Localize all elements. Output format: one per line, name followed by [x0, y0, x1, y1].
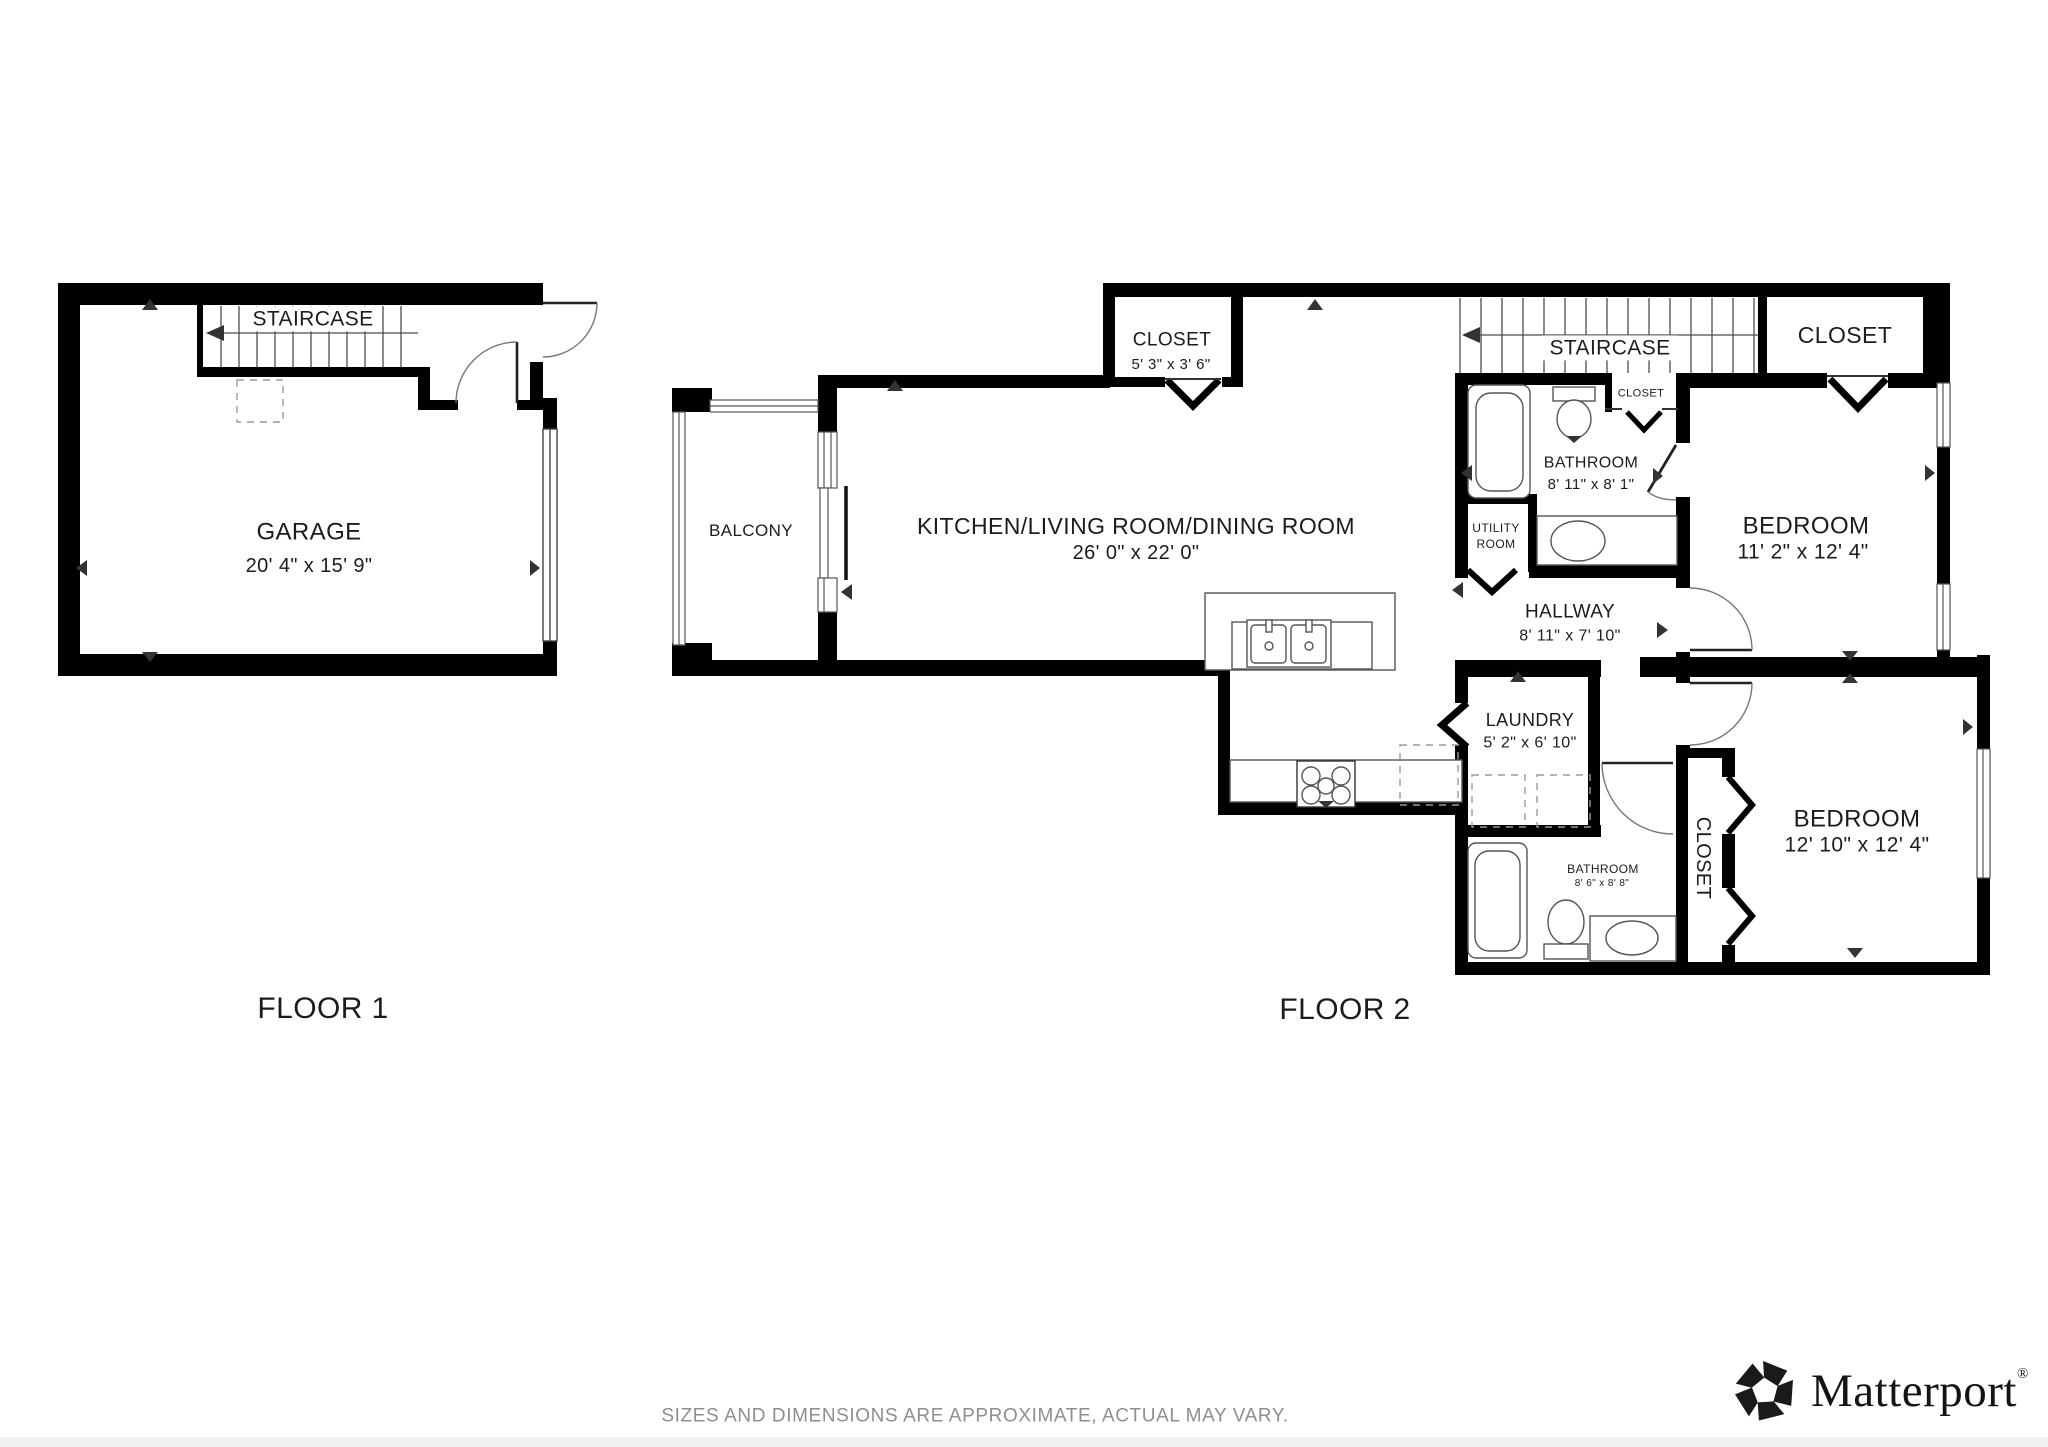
faucet: [1306, 620, 1312, 632]
bathroom1-door: [1648, 445, 1676, 500]
garage-door: [543, 429, 557, 641]
toilet-bowl: [1557, 400, 1591, 438]
room-label-utility: UTILITY ROOM: [1457, 520, 1535, 552]
floor2-title: FLOOR 2: [1279, 992, 1410, 1028]
room-dims-laundry: 5' 2" x 6' 10": [1483, 733, 1576, 752]
water-heater-dashed: [237, 380, 283, 422]
matterport-logo: Matterport®: [1734, 1360, 2029, 1422]
room-dims-bathroom-1: 8' 11" x 8' 1": [1548, 476, 1635, 494]
footer-strip: [0, 1437, 2048, 1447]
toilet-tank: [1544, 944, 1588, 959]
laundry-appliances-dashed: [1472, 775, 1590, 827]
toilet-bowl: [1548, 900, 1584, 944]
matterport-wordmark: Matterport®: [1811, 1364, 2029, 1418]
room-dims-hallway: 8' 11" x 7' 10": [1519, 626, 1620, 645]
floorplan-canvas: GARAGE 20' 4" x 15' 9" STAIRCASE FLOOR 1…: [0, 0, 2048, 1447]
toilet-tank: [1553, 387, 1595, 401]
floor1-walls: [58, 283, 557, 676]
bedroom1-door: [1690, 588, 1752, 650]
floor2-wall-markers: [841, 299, 1973, 958]
floor1-exterior-door: [543, 303, 597, 357]
room-label-laundry: LAUNDRY: [1486, 710, 1575, 732]
stair-direction-arrow-icon: [206, 325, 224, 341]
floor1-wall-markers: [76, 299, 540, 662]
room-label-kitchen: KITCHEN/LIVING ROOM/DINING ROOM: [917, 513, 1355, 541]
floor1-entry-door: [456, 342, 517, 403]
room-label-closet-small: CLOSET: [1618, 387, 1664, 400]
room-label-closet-top: CLOSET: [1133, 330, 1211, 353]
kitchen-counter: [1230, 760, 1462, 807]
room-dims-bathroom-2: 8' 6" x 8' 8": [1575, 878, 1629, 890]
room-label-balcony: BALCONY: [709, 521, 793, 541]
room-label-staircase-1: STAIRCASE: [245, 306, 380, 331]
bathroom2-fixtures: [1468, 843, 1676, 961]
room-label-bedroom-2: BEDROOM: [1794, 806, 1921, 835]
room-label-closet-vertical: CLOSET: [1691, 817, 1715, 899]
room-dims-kitchen: 26' 0" x 22' 0": [1073, 541, 1200, 565]
toilet-marker: [1566, 436, 1582, 443]
room-label-bathroom-2: BATHROOM: [1567, 862, 1639, 876]
room-dims-bedroom-1: 11' 2" x 12' 4": [1737, 539, 1868, 564]
room-label-bedroom-1: BEDROOM: [1743, 513, 1870, 542]
sink-basin: [1551, 521, 1605, 561]
sink-basin: [1606, 921, 1658, 955]
stair-direction-arrow-icon: [1462, 327, 1480, 343]
faucet: [1266, 620, 1272, 632]
room-dims-bedroom-2: 12' 10" x 12' 4": [1785, 832, 1930, 857]
floor1-title: FLOOR 1: [257, 991, 388, 1027]
kitchen-island: [1205, 593, 1395, 670]
room-label-closet-topright: CLOSET: [1798, 322, 1892, 350]
floorplan-svg: [0, 0, 2048, 1447]
room-dims-closet-top: 5' 3" x 3' 6": [1131, 356, 1210, 374]
room-label-bathroom-1: BATHROOM: [1544, 453, 1638, 472]
bathroom2-door: [1602, 763, 1673, 834]
room-label-hallway: HALLWAY: [1525, 602, 1615, 625]
bedroom2-door: [1690, 683, 1752, 745]
registered-mark: ®: [2017, 1366, 2029, 1382]
disclaimer-text: SIZES AND DIMENSIONS ARE APPROXIMATE, AC…: [661, 1406, 1288, 1429]
room-label-garage: GARAGE: [256, 519, 361, 548]
room-label-staircase-2: STAIRCASE: [1542, 335, 1677, 360]
matterport-pinwheel-icon: [1734, 1360, 1796, 1422]
room-dims-garage: 20' 4" x 15' 9": [246, 554, 373, 578]
